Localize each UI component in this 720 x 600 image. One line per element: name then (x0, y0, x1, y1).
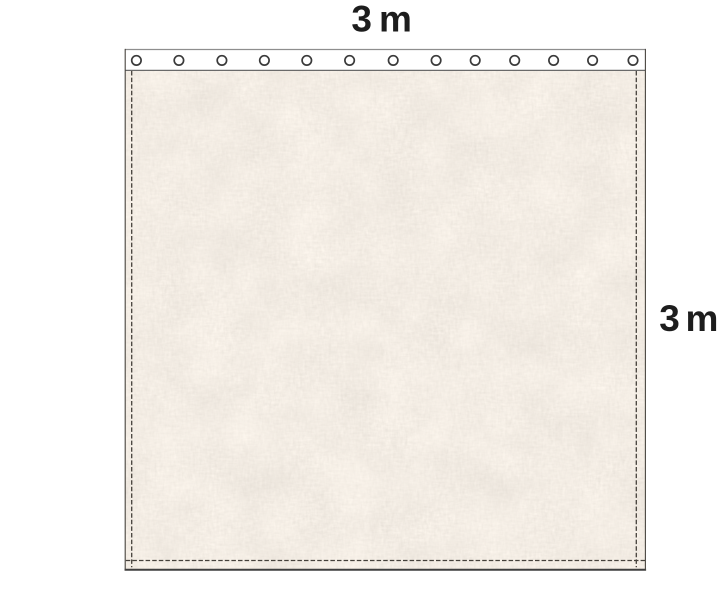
svg-text:m: m (379, 0, 412, 39)
svg-text:3: 3 (659, 298, 680, 339)
svg-text:m: m (686, 298, 719, 339)
svg-text:3: 3 (351, 0, 372, 39)
